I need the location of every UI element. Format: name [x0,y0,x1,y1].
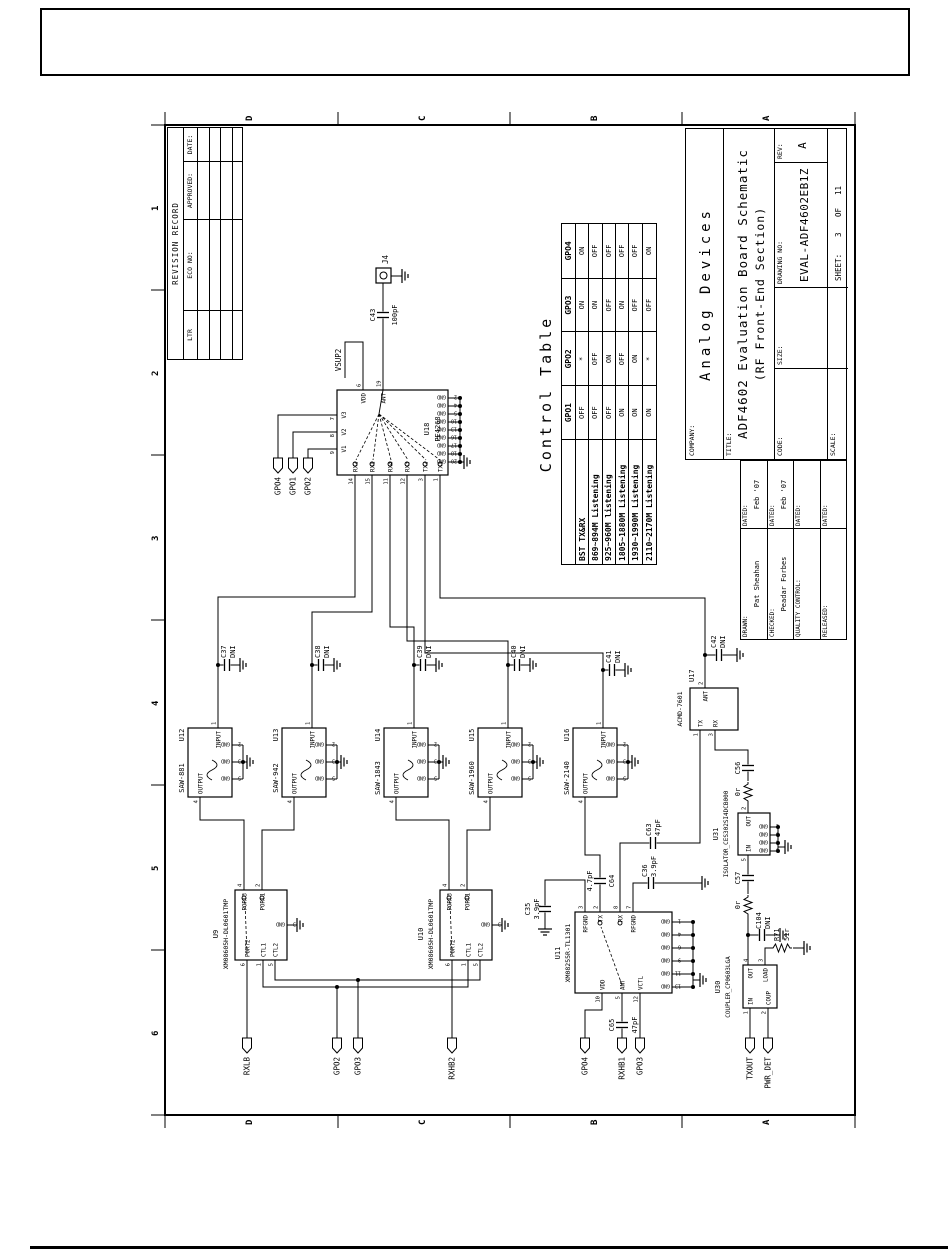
released-label: RELEASED: [822,604,829,637]
zone-letter-D: D [245,116,255,121]
connector-label-GPO3: GPO3 [636,1057,645,1075]
connector-RXLB [243,1038,252,1053]
control-row-label: 1930~1990M Listening [629,439,642,564]
control-value-GPO2: * [576,332,589,386]
schematic-page: RX214RX115RX411RX312TX23TX11VDD6ANT19V37… [0,0,950,1254]
pin-number-U18-16: 16 [451,434,457,440]
revision-record-columns: LTRECO NO:APPROVED:DATE: [184,128,243,359]
zone-letter-C: C [418,1120,428,1125]
pin-name-U11-RFGND: RFGND [584,914,590,932]
pin-number-U9-6: 6 [241,963,247,966]
text-C43: C43 [369,309,377,322]
text-U18: U18 [423,423,431,436]
junction-dot [626,760,630,764]
connector-J4-pin [380,272,387,279]
control-row-label: 925~960M listening [603,439,616,564]
drawn-name: Pat Sheahan [753,529,761,639]
signoff-row-drawn: DRAWN: Pat Sheahan DATED: Feb '07 [741,461,768,639]
pin-number-U16-5: 5 [623,775,626,781]
pin-number-U9-3: 3 [293,921,296,927]
size-label: SIZE: [776,345,784,365]
junction-dot [458,436,462,440]
control-table-corner [562,439,576,564]
text-C42: C42 [710,635,718,648]
zone-letter-B: B [590,1120,600,1125]
rev-empty-cell [221,162,233,219]
pin-name-U16-OUTPUT: OUTPUT [584,773,590,794]
pin-name-U31-GND: GND [759,839,768,845]
pin-name-U18-GND: GND [437,442,446,448]
text-47pF: 47pF [654,819,662,836]
pin-name-U10-CTL1: CTL1 [467,943,473,957]
pin-number-U31-5: 5 [742,858,748,861]
scale-cell: SCALE: [827,368,848,459]
text-C63: C63 [645,823,653,836]
switch-throw [379,414,391,460]
pin-number-U18-7: 7 [330,417,336,420]
junction-dot [691,972,695,976]
pin-number-U11-8: 8 [614,906,620,909]
rev-empty-cell [198,162,210,219]
pin-number-U17-2: 2 [699,682,705,685]
text-C39: C39 [416,645,424,658]
code-label: CODE: [776,436,784,456]
drawing-no-cell: DRAWING NO: EVAL-ADF4602EB1Z [774,162,827,287]
junction-dot [746,933,750,937]
sheet-total: 11 [834,186,843,195]
switch-throw [379,414,408,460]
text-C57: C57 [734,872,742,885]
pin-name-U13-GND: GND [315,775,324,781]
pin-name-U14-GND: GND [417,741,426,747]
pin-name-U18-GND: GND [437,402,446,408]
pin-name-U18-GND: GND [437,450,446,456]
rev-col-header: APPROVED: [184,162,198,219]
connector-GPO4 [274,458,283,473]
text-SAW-1960: SAW-1960 [468,761,476,795]
pin-number-U12-2: 2 [238,741,241,747]
text-SAW-1843: SAW-1843 [374,761,382,795]
zone-number-2: 2 [151,371,161,376]
text-U30: U30 [714,981,722,994]
pin-name-U30-LOAD: LOAD [764,967,770,981]
pin-number-U11-9: 9 [678,957,681,963]
connector-GPO1 [289,458,298,473]
revision-record-title: REVISION RECORD [168,128,184,359]
text-U10: U10 [417,928,425,941]
pin-name-U11-GND: GND [661,918,670,924]
wire [585,797,600,912]
pin-name-U14-OUTPUT: OUTPUT [395,773,401,794]
switch-throw [379,414,426,460]
text-U11: U11 [554,947,562,960]
title-label: TITLE: [725,433,733,456]
connector-RXHB2 [448,1038,457,1053]
connector-J4 [376,268,391,283]
pin-number-U10-1: 1 [462,963,468,966]
text-DNI: DNI [229,645,237,658]
pin-name-U9-PORT1: PORT1 [261,892,267,910]
control-value-GPO4: ON [576,224,589,278]
pin-name-U18-V2: V2 [342,429,348,436]
pin-name-U31-GND: GND [759,831,768,837]
rev-empty-cell [198,128,210,161]
rev-cell: REV: A [774,129,827,162]
junction-dot [703,653,707,657]
pin-name-U11-GND: GND [661,931,670,937]
text-0r: 0r [734,901,742,909]
released-dated-cell: DATED: [821,461,847,528]
zone-number-4: 4 [151,701,161,706]
junction-dot [776,833,780,837]
pin-name-U9-GND: GND [276,921,285,927]
pin-name-U11-RFGND: RFGND [632,914,638,932]
text-ACMD-7601: ACMD-7601 [676,691,684,726]
sheet-of-label: OF [834,208,843,217]
pin-name-U18-GND: GND [437,394,446,400]
pin-number-U11-7: 7 [627,906,633,909]
text-U16: U16 [563,729,571,742]
zone-number-5: 5 [151,866,161,871]
junction-dot [458,420,462,424]
text-DNI: DNI [719,635,727,648]
connector-label-GPO3: GPO3 [354,1057,363,1075]
pin-number-U30-3: 3 [759,959,765,962]
control-row-label: 1805~1880M Listening [616,439,629,564]
pin-number-U9-2: 2 [256,884,262,887]
pin-number-U10-5: 5 [474,963,480,966]
control-table-heading: Control Table [537,269,555,519]
pin-number-U13-1: 1 [306,722,312,725]
pin-number-U11-1: 1 [678,918,681,924]
text-SAW-2140: SAW-2140 [563,761,571,795]
pin-name-U11-GND: GND [661,944,670,950]
pin-number-U11-10: 10 [596,996,602,1003]
wire [262,797,294,890]
junction-dot [691,933,695,937]
control-table: GPO1GPO2GPO3GPO4BST TX&RXOFF*ONON869~894… [561,223,657,565]
drawing-title-line2: (RF Front-End Section) [753,129,767,459]
text-U31: U31 [712,828,720,841]
control-value-GPO1: ON [643,385,656,439]
header-box [40,8,910,76]
pin-number-U18-11: 11 [384,478,390,485]
title-block: COMPANY: Analog Devices TITLE: ADF4602 E… [685,128,847,460]
title-block-row4: SCALE: SHEET: 3 OF 11 [827,129,848,459]
drawn-dated-cell: DATED: Feb '07 [741,461,767,528]
qc-dated-label: DATED: [795,504,802,526]
pin-number-U10-4: 4 [443,883,449,887]
connector-label-GPO4: GPO4 [581,1057,590,1076]
pin-number-U18-18: 18 [451,450,457,456]
connector-label-GPO2: GPO2 [333,1057,342,1075]
control-value-GPO4: OFF [589,224,602,278]
wire [200,797,244,890]
rev-label: REV: [776,143,784,159]
pin-name-U9-CTL2: CTL2 [274,943,280,957]
pin-number-U13-2: 2 [332,741,335,747]
released-cell: RELEASED: [821,528,847,639]
control-value-GPO1: ON [616,385,629,439]
pin-name-U10-PORT1: PORT1 [466,892,472,910]
rev-empty-cell [233,162,244,219]
text-C38: C38 [314,645,322,658]
pin-name-U30-IN: IN [749,998,755,1005]
pin-number-U30-4: 4 [744,958,750,962]
checked-dated-label: DATED: [769,504,776,526]
pin-number-U12-4: 4 [194,799,200,803]
control-value-GPO4: OFF [603,224,616,278]
pin-name-U17-ANT: ANT [704,691,710,702]
control-row-label: BST TX&RX [576,439,589,564]
pin-number-U18-9: 9 [330,451,336,454]
text-PE4268: PE4268 [434,416,442,441]
pin-number-U12-5: 5 [238,775,241,781]
connector-GPO4 [581,1038,590,1053]
signoff-row-qc: QUALITY CONTROL: DATED: [794,461,821,639]
junction-dot [458,404,462,408]
junction-dot [458,460,462,464]
rev-col-APPROVED: APPROVED: [184,161,243,219]
pin-number-U11-6: 6 [678,944,681,950]
rev-col-header: LTR [184,311,198,359]
rev-empty-cell [210,311,222,359]
connector-PWR_DET [764,1038,773,1053]
rev-empty-cell [233,128,244,161]
pin-name-U10-GND: GND [481,921,490,927]
drawing-no-label: DRAWING NO: [776,241,784,284]
text-U9: U9 [212,930,220,938]
text-3.9pF: 3.9pF [533,898,541,919]
text-C56: C56 [734,762,742,775]
control-value-GPO3: ON [589,278,602,332]
qc-label: QUALITY CONTROL: [795,579,802,637]
text-XM08255R-TL1301: XM08255R-TL1301 [564,924,572,983]
wire [390,475,414,728]
pin-number-U11-5: 5 [616,996,622,999]
pin-name-U13-OUTPUT: OUTPUT [293,773,299,794]
signoff-row-released: RELEASED: DATED: [821,461,847,639]
pin-number-U10-3: 3 [498,921,501,927]
pin-name-U13-GND: GND [315,741,324,747]
control-row-label: 869~894M Listening [589,439,602,564]
pin-number-U11-12: 12 [634,996,640,1003]
rev-empty-cell [221,128,233,161]
pin-number-U14-2: 2 [434,741,437,747]
rev-empty-cell [233,311,244,359]
sheet-label: SHEET: [834,254,843,281]
signoff-block: DRAWN: Pat Sheahan DATED: Feb '07 CHECKE… [740,460,847,640]
pin-number-U18-12: 12 [401,478,407,485]
pin-number-U9-5: 5 [269,963,275,966]
connector-label-GPO2: GPO2 [304,477,313,495]
code-cell: CODE: [774,368,827,459]
pin-name-U15-OUTPUT: OUTPUT [489,773,495,794]
rev-col-header: DATE: [184,128,198,161]
text-U14: U14 [374,729,382,742]
checked-name: Peadar Forbes [780,529,788,639]
text-C37: C37 [220,645,228,658]
rev-empty-cell [210,220,222,310]
connector-GPO2 [304,458,313,473]
pin-number-U18-4: 4 [454,402,457,408]
control-value-GPO4: OFF [629,224,642,278]
text-100pF: 100pF [391,304,399,325]
wire [396,797,449,890]
rev-empty-cell [198,220,210,310]
zone-number-3: 3 [151,536,161,541]
pin-name-U18-V1: V1 [342,445,348,452]
rev-empty-cell [210,128,222,161]
control-table-header-GPO4: GPO4 [562,224,576,278]
pin-name-U30-OUT: OUT [749,968,755,979]
text-VSUP2: VSUP2 [334,349,343,372]
zone-letter-D: D [245,1120,255,1125]
rev-col-ECONO: ECO NO: [184,219,243,310]
junction-dot [691,920,695,924]
text-ISOLATOR_CES302SI4DCB000: ISOLATOR_CES302SI4DCB000 [723,790,730,877]
zone-letter-C: C [418,116,428,121]
pin-number-U16-4: 4 [579,799,585,803]
junction-dot [458,396,462,400]
connector-label-RXHB1: RXHB1 [618,1057,627,1080]
pin-name-U10-CTL2: CTL2 [479,943,485,957]
text-U13: U13 [272,729,280,742]
text-C40: C40 [510,645,518,658]
pin-number-U18-2: 2 [454,394,457,400]
control-value-GPO1: OFF [576,385,589,439]
pin-number-U15-4: 4 [484,799,490,803]
text-XM08605H-DL0601TMP: XM08605H-DL0601TMP [222,899,230,970]
control-row-label: 2110~2170M Listening [643,439,656,564]
control-value-GPO2: OFF [589,332,602,386]
zone-number-1: 1 [151,206,161,211]
control-value-GPO1: ON [629,385,642,439]
zone-letter-A: A [762,116,772,121]
text-0r: 0r [734,788,742,796]
pin-number-U13-5: 5 [332,775,335,781]
switch-throw [601,927,622,985]
text-DNI: DNI [519,645,527,658]
pin-number-U14-4: 4 [390,799,396,803]
pin-name-U31-OUT: OUT [747,816,753,827]
pin-number-U11-2: 2 [594,906,600,909]
control-table-header-GPO3: GPO3 [562,278,576,332]
text-DNI: DNI [323,645,331,658]
checked-label: CHECKED: [769,608,776,637]
pin-number-U13-3: 3 [332,758,335,764]
rev-empty-cell [210,162,222,219]
text-DNI: DNI [614,650,622,663]
released-dated-label: DATED: [822,504,829,526]
pin-number-U9-1: 1 [257,963,263,966]
pin-name-U31-IN: IN [747,845,753,852]
company-cell: COMPANY: Analog Devices [686,129,724,459]
control-value-GPO3: OFF [643,278,656,332]
control-value-GPO3: OFF [629,278,642,332]
text-C104: C104 [755,912,763,929]
pin-number-U18-15: 15 [366,478,372,485]
pin-name-U11-VDD: VDD [601,979,607,990]
text-4.7pF: 4.7pF [586,870,594,891]
junction-dot [458,452,462,456]
connector-label-RXLB: RXLB [243,1057,252,1076]
pin-name-U11-VCTL: VCTL [639,976,645,990]
connector-GPO3 [636,1038,645,1053]
pin-number-U16-3: 3 [623,758,626,764]
pin-number-U18-10: 10 [451,418,457,424]
text-U15: U15 [468,729,476,742]
control-value-GPO2: ON [603,332,616,386]
rev-empty-cell [198,311,210,359]
control-value-GPO3: ON [616,278,629,332]
rev-empty-cell [233,220,244,310]
junction-dot [458,412,462,416]
junction-dot [458,444,462,448]
switch-throw [379,414,440,460]
size-cell: SIZE: [774,287,827,368]
pin-number-U18-20: 20 [451,458,457,464]
pin-number-U15-5: 5 [528,775,531,781]
junction-dot [691,946,695,950]
pin-number-U18-8: 8 [330,434,336,437]
pin-number-U18-3: 3 [419,478,425,481]
pin-name-U14-GND: GND [417,775,426,781]
title-block-row3: CODE: SIZE: DRAWING NO: EVAL-ADF4602EB1Z… [774,129,828,459]
text-R71: R71 [773,928,781,941]
saw-symbol [301,760,311,780]
pin-name-U31-GND: GND [759,847,768,853]
pin-number-U31-2: 2 [742,807,748,810]
pin-name-U12-GND: GND [221,741,230,747]
text-C35: C35 [524,903,532,916]
revision-record-table: REVISION RECORD LTRECO NO:APPROVED:DATE: [167,127,243,360]
checked-dated-cell: DATED: Feb '07 [768,461,794,528]
rev-empty-cell [221,311,233,359]
pin-number-U18-5: 5 [454,410,457,416]
junction-dot [691,985,695,989]
drawing-no-value: EVAL-ADF4602EB1Z [798,163,811,287]
drawn-dated-label: DATED: [742,504,749,526]
text-C65: C65 [608,1019,616,1032]
pin-name-U9-CTL1: CTL1 [262,943,268,957]
pin-name-U18-VDD: VDD [362,393,368,404]
junction-dot [601,668,605,672]
pin-name-U17-TX: TX [699,720,705,727]
junction-dot [335,760,339,764]
pin-number-U12-3: 3 [238,758,241,764]
switch-throw [373,414,379,460]
wire [545,880,585,925]
junction-dot [506,663,510,667]
pin-name-U11-GND: GND [661,957,670,963]
connector-label-RXHB2: RXHB2 [448,1057,457,1080]
rev-value: A [796,129,809,162]
pin-name-U13-GND: GND [315,758,324,764]
sheet-cell: SHEET: 3 OF 11 [827,129,848,287]
text-U12: U12 [178,729,186,742]
bottom-rule [30,1246,948,1249]
qc-dated-cell: DATED: [794,461,820,528]
pin-number-U14-1: 1 [408,722,414,725]
pin-number-U11-11: 11 [675,970,681,976]
junction-dot [216,663,220,667]
title-cell: TITLE: ADF4602 Evaluation Board Schemati… [723,129,775,459]
pin-number-U18-14: 14 [349,477,355,484]
control-value-GPO2: ON [629,332,642,386]
pin-name-U12-GND: GND [221,758,230,764]
control-value-GPO3: OFF [603,278,616,332]
